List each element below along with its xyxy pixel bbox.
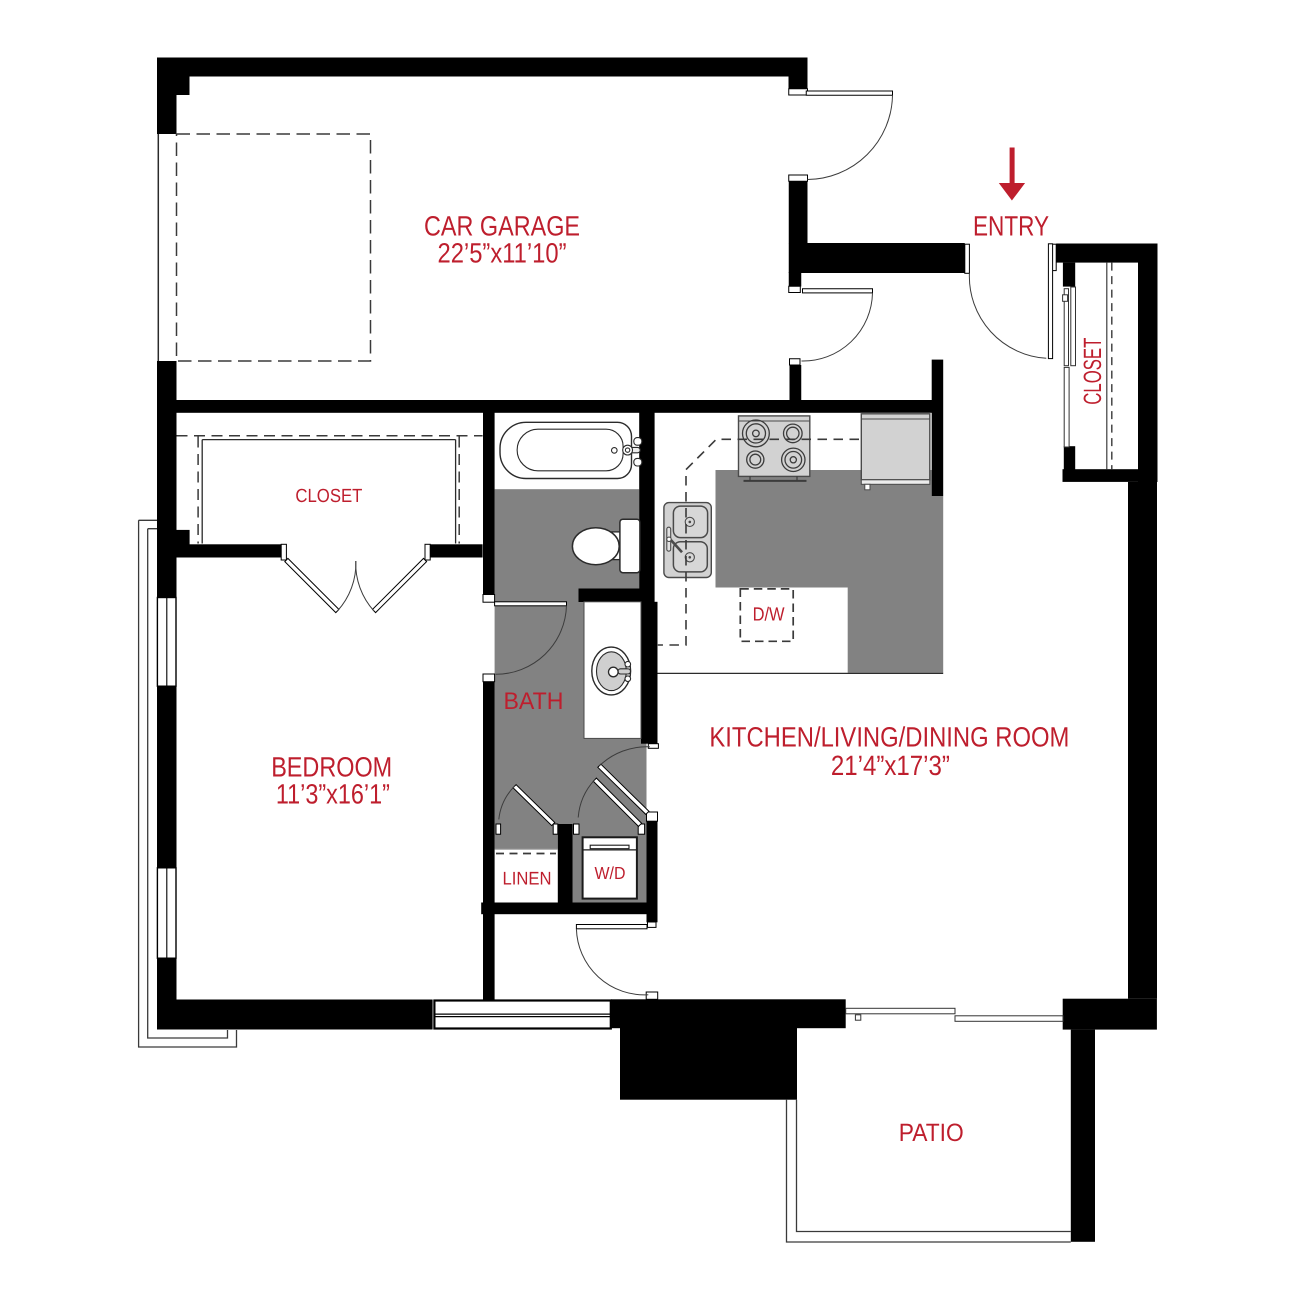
svg-text:ENTRY: ENTRY bbox=[973, 211, 1049, 242]
svg-text:PATIO: PATIO bbox=[899, 1119, 964, 1147]
svg-text:22’5”x11’10”: 22’5”x11’10” bbox=[438, 238, 567, 269]
svg-text:BATH: BATH bbox=[504, 688, 564, 715]
svg-text:21’4”x17’3”: 21’4”x17’3” bbox=[831, 750, 950, 781]
svg-text:D/W: D/W bbox=[753, 605, 785, 626]
svg-text:CLOSET: CLOSET bbox=[295, 486, 362, 507]
svg-text:CLOSET: CLOSET bbox=[1079, 338, 1107, 405]
svg-text:KITCHEN/LIVING/DINING ROOM: KITCHEN/LIVING/DINING ROOM bbox=[709, 721, 1069, 752]
svg-text:11’3”x16’1”: 11’3”x16’1” bbox=[276, 779, 390, 810]
svg-text:LINEN: LINEN bbox=[503, 867, 552, 888]
svg-text:W/D: W/D bbox=[595, 863, 626, 883]
